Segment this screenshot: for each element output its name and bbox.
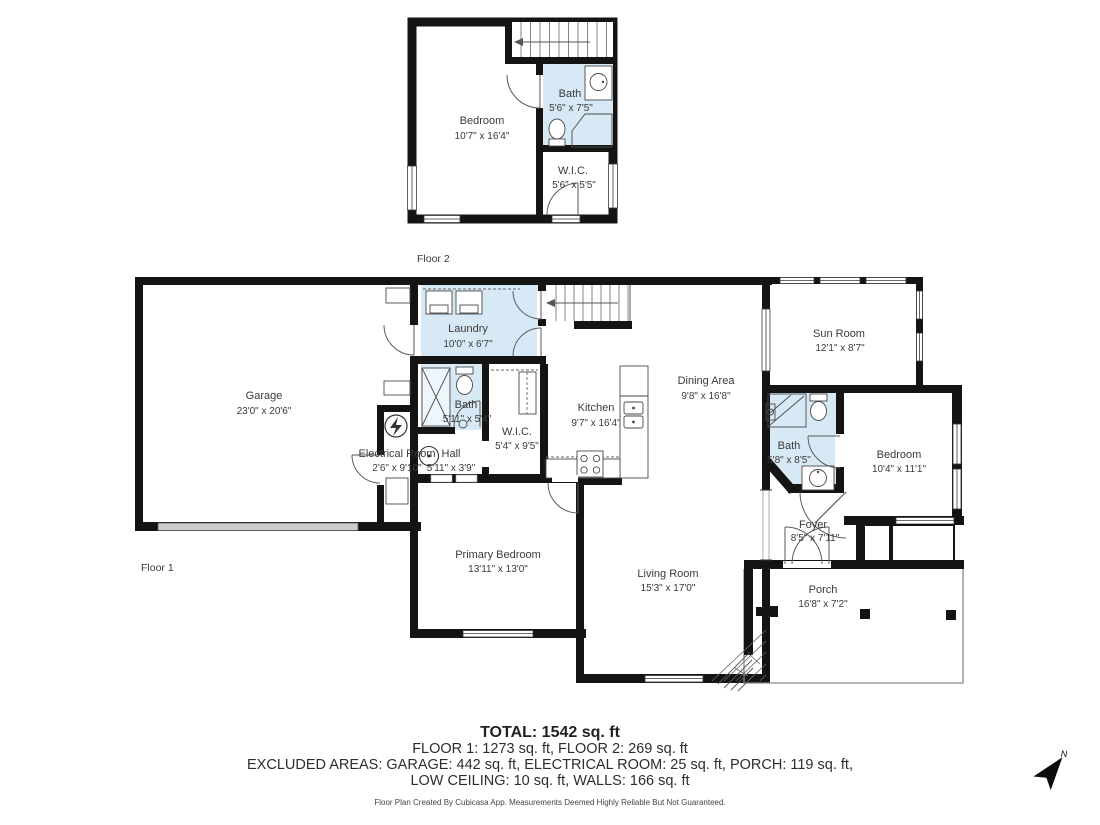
- room-label-laundry: Laundry: [448, 323, 488, 335]
- room-label-bath-right: Bath: [778, 440, 801, 452]
- room-label-hall: Hall: [442, 448, 461, 460]
- floor-plan-page: Bedroom 10'7" x 16'4" Bath 5'6" x 7'5" W…: [0, 0, 1100, 825]
- room-dims-wic-mid: 5'4" x 9'5": [495, 441, 539, 452]
- room-dims-foyer: 8'5" x 7'11": [791, 533, 840, 544]
- disclaimer-text: Floor Plan Created By Cubicasa App. Meas…: [374, 798, 725, 807]
- door-arc: [800, 492, 846, 538]
- room-dims-f2-bath: 5'6" x 7'5": [549, 103, 593, 114]
- toilet-icon: [456, 367, 473, 395]
- room-dims-bath-right: 5'8" x 8'5": [767, 455, 811, 466]
- door-arc: [548, 475, 578, 513]
- room-dims-bath-mid: 5'11" x 5'4": [443, 414, 492, 425]
- room-label-living: Living Room: [637, 568, 698, 580]
- sink-icon: [585, 66, 612, 100]
- room-dims-bedroom-right: 10'4" x 11'1": [872, 464, 927, 475]
- room-dims-electrical: 2'6" x 9'10": [372, 463, 422, 474]
- electrical-panel-icon: [385, 415, 407, 437]
- closet-rod: [491, 370, 538, 414]
- toilet-icon: [549, 119, 565, 146]
- room-label-electrical: Electrical Room: [358, 448, 435, 460]
- stairs-icon: [512, 22, 613, 58]
- cased-opening: [760, 490, 772, 560]
- floor-plan-drawing: Bedroom 10'7" x 16'4" Bath 5'6" x 7'5" W…: [0, 0, 1100, 825]
- floor2-plan: [408, 22, 618, 223]
- stairs-icon: [546, 285, 630, 321]
- closet: [864, 525, 954, 563]
- room-dims-f2-bedroom: 10'7" x 16'4": [455, 131, 510, 142]
- stove-icon: [577, 451, 603, 477]
- excluded-areas-text-1: EXCLUDED AREAS: GARAGE: 442 sq. ft, ELEC…: [247, 757, 853, 773]
- compass-north-icon: N: [1033, 749, 1071, 790]
- floor-areas-text: FLOOR 1: 1273 sq. ft, FLOOR 2: 269 sq. f…: [412, 741, 688, 757]
- room-dims-hall: 5'11" x 3'9": [427, 463, 476, 474]
- sink-icon: [802, 466, 834, 490]
- garage-door: [158, 523, 358, 531]
- room-dims-primary: 13'11" x 13'0": [468, 564, 528, 575]
- room-label-f2-wic: W.I.C.: [558, 165, 588, 177]
- room-dims-garage: 23'0" x 20'6": [237, 406, 292, 417]
- room-label-wic-mid: W.I.C.: [502, 426, 532, 438]
- room-label-f2-bedroom: Bedroom: [460, 115, 505, 127]
- room-dims-f2-wic: 5'6" x 5'5": [552, 180, 596, 191]
- toilet-icon: [810, 394, 827, 421]
- room-label-sunroom: Sun Room: [813, 328, 865, 340]
- room-dims-dining: 9'8" x 16'8": [681, 391, 731, 402]
- excluded-areas-text-2: LOW CEILING: 10 sq. ft, WALLS: 166 sq. f…: [410, 773, 689, 789]
- room-label-primary: Primary Bedroom: [455, 549, 541, 561]
- porch-outline: [718, 569, 963, 691]
- room-label-dining: Dining Area: [678, 375, 736, 387]
- room-label-bath-mid: Bath: [455, 399, 478, 411]
- room-dims-sunroom: 12'1" x 8'7": [815, 343, 865, 354]
- room-label-garage: Garage: [246, 390, 283, 402]
- room-dims-living: 15'3" x 17'0": [641, 583, 696, 594]
- compass-north-label: N: [1061, 749, 1068, 759]
- room-label-porch: Porch: [809, 584, 838, 596]
- floor2-caption: Floor 2: [417, 253, 450, 265]
- room-label-bedroom-right: Bedroom: [877, 449, 922, 461]
- total-area-text: TOTAL: 1542 sq. ft: [480, 724, 621, 741]
- area-summary: TOTAL: 1542 sq. ft FLOOR 1: 1273 sq. ft,…: [247, 724, 853, 807]
- floor1-caption: Floor 1: [141, 562, 174, 574]
- room-label-kitchen: Kitchen: [578, 402, 615, 414]
- room-label-foyer: Foyer: [799, 519, 827, 531]
- room-dims-kitchen: 9'7" x 16'4": [571, 418, 621, 429]
- room-label-f2-bath: Bath: [559, 88, 582, 100]
- room-dims-porch: 16'8" x 7'2": [798, 599, 848, 610]
- room-dims-laundry: 10'0" x 6'7": [443, 339, 493, 350]
